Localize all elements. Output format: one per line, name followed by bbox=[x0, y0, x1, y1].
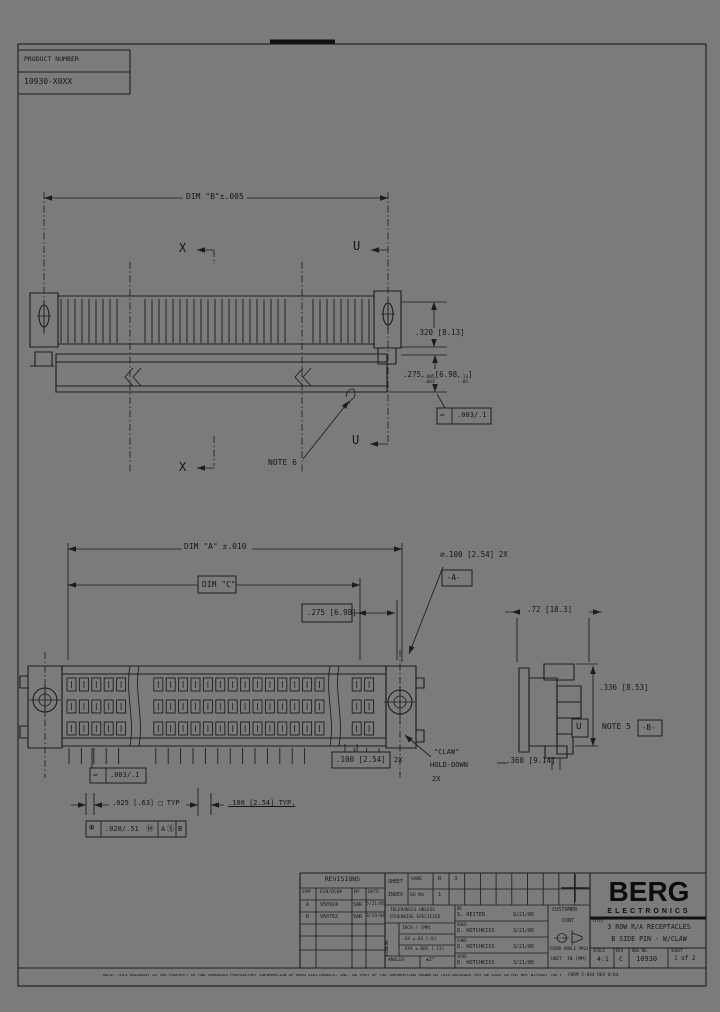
sheet-border bbox=[18, 44, 706, 986]
tolerances-angles-value: ±2° bbox=[426, 959, 435, 964]
approval-label: CHKD bbox=[457, 939, 467, 943]
approval-name: D. HOTCHKISS bbox=[457, 929, 494, 934]
position-tolerance: .020/.51 bbox=[105, 826, 139, 833]
section-u-top-label: U bbox=[353, 240, 360, 252]
approval-name: S. REITER bbox=[457, 913, 485, 918]
revisions-header-date: DATE bbox=[368, 891, 379, 896]
sheet-index-cell: 1 bbox=[438, 893, 441, 899]
dim-100-2x-qty: 2X bbox=[394, 757, 402, 764]
flatness-value-plan: .003/.1 bbox=[110, 772, 140, 779]
revision-row-ecn: V50924 bbox=[320, 903, 338, 908]
dwg-no-value: 10930 bbox=[636, 956, 657, 963]
sheet-value: 1 of 2 bbox=[674, 956, 696, 962]
dim-c-label: DIM "C" bbox=[202, 581, 236, 589]
drawing-title-line2: B SIDE PIN - W/CLAW bbox=[593, 936, 705, 943]
section-x-bottom-label: X bbox=[179, 461, 186, 473]
approval-date: 9/21/86 bbox=[513, 913, 534, 918]
proprietary-note: NOTE: THIS DOCUMENT IS THE PROPERTY OF A… bbox=[103, 974, 561, 978]
note6-label: NOTE 6 bbox=[268, 459, 297, 467]
claw-callout-line1: "CLAW" bbox=[434, 749, 459, 756]
dim-100-2x-label: .100 [2.54] bbox=[336, 756, 386, 764]
product-number-value: 10930-X0XX bbox=[24, 78, 72, 86]
approval-label: APVD bbox=[457, 955, 467, 959]
approval-name: D. HOTCHKISS bbox=[457, 961, 494, 966]
dimension-arrowheads bbox=[44, 195, 601, 808]
note5-label: NOTE 5 bbox=[602, 723, 631, 731]
sheet-index-label2: INDEX bbox=[388, 893, 403, 898]
datum-b-label: -B- bbox=[642, 724, 656, 732]
position-symbol: ⊕ bbox=[89, 824, 94, 833]
form-number: FORM 5-844 REV 8/84 bbox=[568, 974, 618, 978]
revision-row-date: 5/21/85 bbox=[366, 903, 385, 908]
revision-row-by: SAR bbox=[353, 903, 362, 908]
flatness-value-top: .003/.1 bbox=[457, 412, 487, 419]
scale-value: 4:1 bbox=[597, 956, 609, 963]
section-u-box-label: U bbox=[576, 723, 581, 732]
dim-360-label: .360 [9.14] bbox=[506, 757, 556, 765]
drawing-title-line1: 3 ROW R/A RECEPTACLES bbox=[593, 924, 705, 931]
tolerances-row: .XX ±.03 [.8] bbox=[402, 938, 436, 942]
sheet-index-cell: 3 bbox=[454, 877, 457, 883]
dim-336-label: .336 [8.53] bbox=[599, 684, 649, 692]
dim-320-label: .320 [8.13] bbox=[415, 329, 465, 337]
revision-row-by: SAR bbox=[353, 915, 362, 920]
revision-row-sym: B bbox=[306, 915, 309, 920]
sheet-index-row1-label: SAME bbox=[411, 878, 422, 883]
unit-value: IN [MM] bbox=[567, 958, 586, 963]
tolerances-row: INCH / [MM] bbox=[402, 927, 431, 931]
hole-callout-label: ⌀.100 [2.54] 2X bbox=[440, 551, 508, 559]
approval-date: 3/21/86 bbox=[513, 945, 534, 950]
approval-date: 3/21/86 bbox=[513, 929, 534, 934]
sheet-label: SHEET bbox=[671, 949, 683, 953]
dwg-no-label: DWG NO. bbox=[632, 949, 649, 953]
dim-a-label: DIM "A" ±.010 bbox=[184, 543, 247, 551]
title-field-label: TITLE bbox=[592, 919, 603, 923]
side-view-outline bbox=[519, 664, 581, 770]
position-datum1: A bbox=[161, 826, 165, 833]
third-angle-projection-icon bbox=[554, 931, 582, 946]
revision-row-sym: A bbox=[306, 903, 309, 908]
third-angle-proj-label: THIRD ANGLE PROJ. bbox=[549, 947, 591, 951]
position-datum1-mod: Ⓢ bbox=[167, 825, 175, 833]
sheet-index-cell: R bbox=[438, 877, 441, 883]
position-modifier: Ⓜ bbox=[146, 825, 154, 833]
dim-275-basic-label: .275 [6.98] bbox=[307, 609, 357, 617]
tolerances-linear-label: LINEAR bbox=[386, 940, 390, 956]
revisions-header-sym: SYM bbox=[302, 891, 310, 896]
dim-b-label: DIM "B"±.005 bbox=[186, 193, 244, 201]
revisions-header-by: BY bbox=[354, 891, 360, 896]
section-x-top-label: X bbox=[179, 242, 186, 254]
approval-date: 3/21/86 bbox=[513, 961, 534, 966]
approval-label: ENGR bbox=[457, 923, 467, 927]
dim-72-label: .72 [18.3] bbox=[527, 606, 572, 614]
drawing-linework bbox=[0, 0, 720, 1012]
approval-label: DR bbox=[457, 907, 462, 911]
dimension-lines bbox=[44, 198, 602, 816]
generated-linework bbox=[61, 299, 575, 905]
tolerances-title1: TOLERANCES UNLESS bbox=[390, 909, 435, 913]
unit-label: UNIT bbox=[551, 958, 562, 963]
centerlines bbox=[44, 192, 400, 778]
dim-100-typ-label: .100 [2.54] TYP. bbox=[228, 800, 295, 807]
datum-a-label: -A- bbox=[447, 574, 461, 582]
customer-label: CUSTOMER bbox=[552, 908, 577, 913]
claw-callout-line2: HOLD-DOWN bbox=[430, 762, 468, 769]
revisions-title: REVISIONS bbox=[300, 876, 385, 883]
product-number-label: PRODUCT NUMBER bbox=[24, 56, 79, 63]
sheet-index-row2-label: SH NO bbox=[410, 894, 424, 899]
flatness-symbol-plan: ▱ bbox=[93, 771, 98, 779]
approval-name: D. HOTCHKISS bbox=[457, 945, 494, 950]
drawing-sheet: PRODUCT NUMBER 10930-X0XX DIM "B"±.005 X… bbox=[0, 0, 720, 1012]
tolerances-angles-label: ANGLES bbox=[388, 959, 405, 964]
section-u-bottom-label: U bbox=[352, 434, 359, 446]
dim-275-toleranced-label: .275+.005-.003[6.98+.13-.05] bbox=[403, 371, 473, 385]
claw-callout-line3: 2X bbox=[432, 776, 440, 783]
rev-label: REV bbox=[616, 949, 623, 953]
tolerances-row: .XXX ±.005 [.13] bbox=[402, 948, 444, 952]
berg-logo-subtitle: ELECTRONICS bbox=[592, 908, 706, 915]
revisions-header-ecn: ECN/DCO# bbox=[320, 891, 342, 896]
sheet-index-label1: SHEET bbox=[388, 880, 403, 885]
scale-label: SCALE bbox=[593, 949, 605, 953]
rev-value: C bbox=[619, 956, 623, 963]
customer-cont-label: CONT bbox=[562, 919, 574, 924]
berg-logo: BERG bbox=[592, 878, 706, 906]
revision-row-ecn: V60762 bbox=[320, 915, 338, 920]
position-datum2: B bbox=[178, 826, 182, 833]
revision-row-date: 3/19/86 bbox=[366, 915, 385, 920]
top-view-outline bbox=[30, 291, 401, 404]
tolerances-title2: OTHERWISE SPECIFIED bbox=[390, 916, 440, 920]
flatness-symbol-top: ▱ bbox=[440, 411, 445, 419]
callout-boxes bbox=[86, 408, 662, 837]
dim-025-label: .025 [.63] □ TYP bbox=[112, 800, 179, 807]
